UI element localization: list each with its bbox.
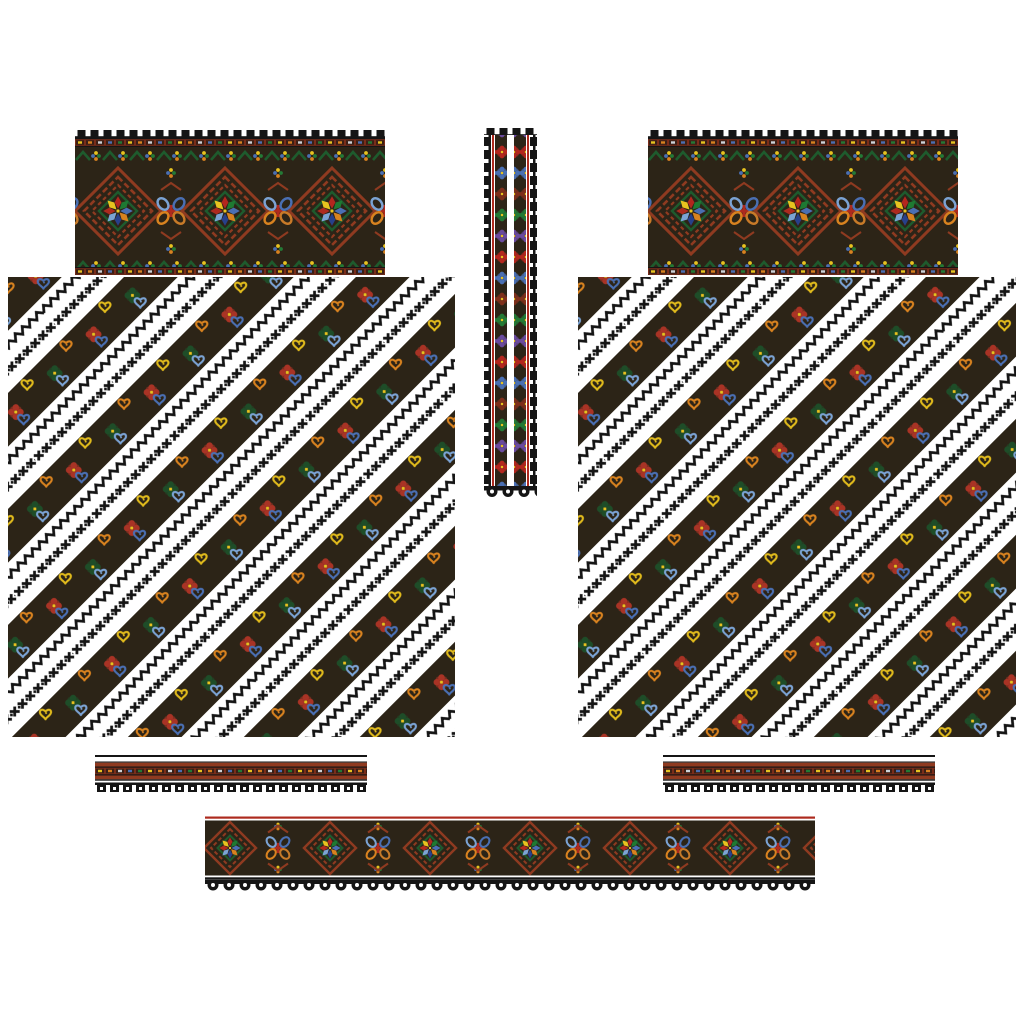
sprout-row (648, 147, 958, 163)
picot-top-edge (648, 130, 958, 138)
red-stripe (95, 763, 367, 767)
rosette-column (495, 135, 507, 486)
picot-top-edge (484, 128, 537, 135)
picot-left-edge (484, 135, 491, 486)
meander-star-row (75, 163, 385, 257)
red-top-line (205, 817, 815, 819)
red-stripe (95, 776, 367, 780)
bottom-line (205, 877, 815, 879)
meander-star-row (648, 163, 958, 257)
sprout-row (648, 257, 958, 267)
picot-right-edge (530, 135, 537, 486)
red-stripe (663, 776, 935, 780)
cuff-strip-left (95, 755, 367, 793)
top-line (663, 755, 935, 757)
picot-bottom-edge (95, 783, 367, 794)
sleeve-panel-left (8, 277, 455, 737)
scallop-bottom-edge (484, 486, 537, 498)
picot-bottom-edge (663, 783, 935, 794)
diagonal-stripe-field (8, 277, 455, 737)
red-rail (527, 135, 529, 486)
band-edge-line (663, 762, 935, 763)
collar-band-left (75, 130, 385, 275)
embroidery-sheet (0, 0, 1024, 1024)
star-chain-row (205, 821, 815, 876)
red-stripe (663, 763, 935, 767)
scallop-bottom-edge (205, 880, 815, 892)
red-rail (492, 135, 494, 486)
hem-band-bottom (205, 815, 815, 892)
sprout-row (75, 147, 385, 163)
dash-row (95, 767, 367, 776)
dash-border-row (75, 138, 385, 147)
band-edge-line (95, 762, 367, 763)
neck-strip-center (484, 128, 537, 500)
band-edge-line (95, 779, 367, 780)
picot-top-edge (75, 130, 385, 138)
sleeve-panel-right (578, 277, 1016, 737)
collar-band-right (648, 130, 958, 275)
dash-border-row (648, 267, 958, 275)
band-edge-line (663, 779, 935, 780)
cuff-strip-right (663, 755, 935, 793)
diagonal-stripe-field (578, 277, 1016, 737)
dash-row (663, 767, 935, 776)
sprout-row (75, 257, 385, 267)
rosette-column (514, 135, 526, 486)
top-line (95, 755, 367, 757)
dash-border-row (648, 138, 958, 147)
dash-border-row (75, 267, 385, 275)
